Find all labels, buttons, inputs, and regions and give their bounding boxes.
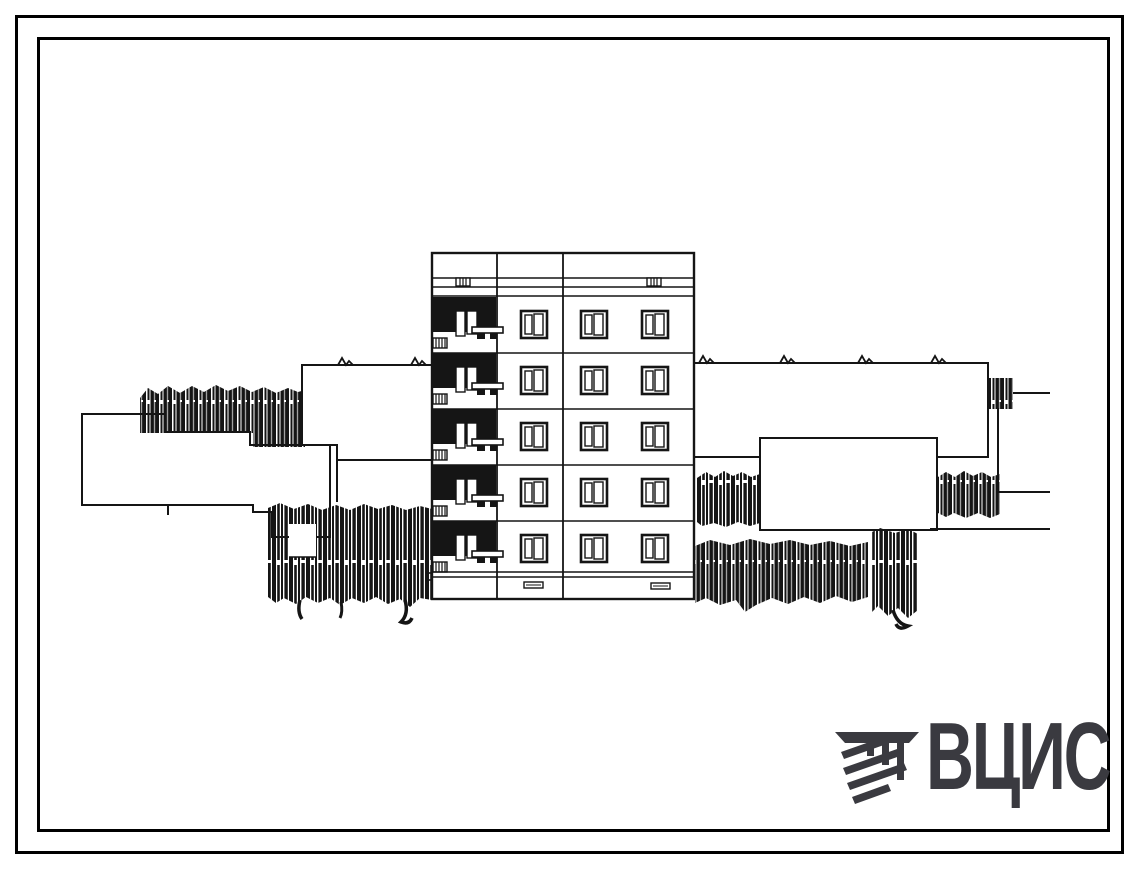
publisher-logo: ВЦИС [833,724,1103,814]
roof-notch [780,356,795,363]
tree-gap [289,524,316,557]
near-left-building-silhouette [302,365,432,460]
tree-trunk [299,600,302,619]
tree-trunk [340,602,342,618]
low-front-building [760,438,937,530]
scanned-drawing-page: ВЦИС [0,0,1139,869]
tree-clump-right [872,528,918,618]
roof-notch [411,358,426,365]
roof-notch [338,358,353,365]
roof-notch [699,356,714,363]
left-neighbor-buildings [82,358,432,623]
logo-tooth [897,743,904,780]
tree-tuft-right-2 [938,471,1000,518]
tree-tuft-far-right [989,378,1013,409]
right-neighbor-buildings [694,356,1050,628]
logo-text: ВЦИС [926,709,1109,805]
tree-tuft-right-1 [697,471,760,527]
main-building [425,253,694,599]
roof-notch [858,356,873,363]
roof-notch [931,356,946,363]
tree-band-lower-right [695,539,868,612]
hatched-beam-logo-icon [833,724,928,808]
